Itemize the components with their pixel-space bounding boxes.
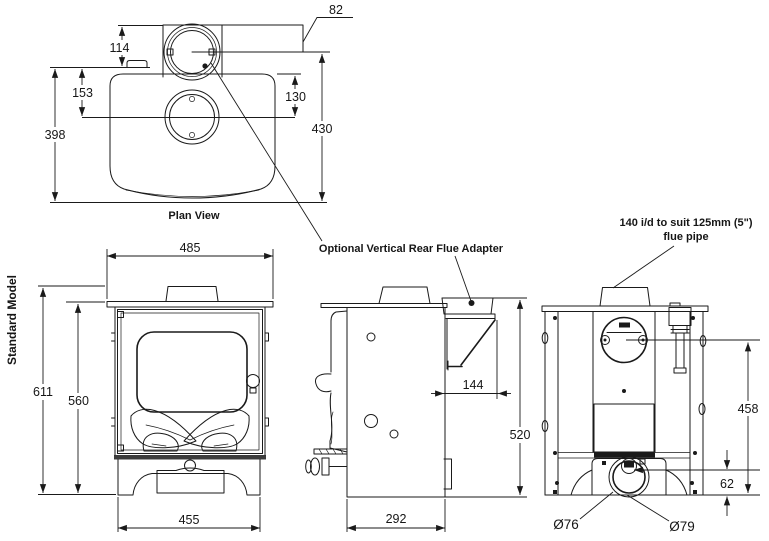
- air-tube-flange: [671, 326, 689, 334]
- plan-front-curve: [126, 190, 259, 197]
- bottom-inlet-tab: [624, 462, 634, 468]
- dim-458-label: 458: [738, 402, 759, 416]
- side-handle-knob: [311, 458, 320, 475]
- side-top-plate: [321, 304, 447, 308]
- rear-flue-adapter-flange: [446, 314, 495, 320]
- door-window: [137, 332, 247, 412]
- rear-top-plate: [542, 306, 708, 312]
- front-hearth-bar: [114, 455, 266, 460]
- side-dimensions: [347, 256, 527, 532]
- side-bolt-small-bottom: [390, 430, 398, 438]
- front-top-plate: [107, 302, 273, 308]
- flue-adapter-label: Optional Vertical Rear Flue Adapter: [319, 243, 504, 255]
- dim-144-label: 144: [463, 378, 484, 392]
- dim-611-label: 611: [33, 385, 53, 399]
- plan-body-outline: [110, 74, 275, 198]
- base-corner-plate: [640, 459, 645, 464]
- door-handle: [247, 375, 260, 388]
- air-tube-cap: [674, 368, 686, 373]
- air-tube-top-box: [669, 308, 691, 326]
- dim-430-label: 430: [312, 122, 333, 136]
- base-corner-bolt: [602, 461, 606, 465]
- side-door-latch: [316, 374, 331, 392]
- front-view: [107, 287, 273, 496]
- dim-114-label: 114: [110, 41, 130, 55]
- plan-outlet-hole-bottom: [189, 132, 194, 137]
- dia-76-label: Ø76: [553, 517, 579, 532]
- dim-62-label: 62: [720, 477, 734, 491]
- dim-455-label: 455: [179, 513, 200, 527]
- rear-edge-tabs: [542, 333, 706, 432]
- side-bolt-small-top: [367, 333, 375, 341]
- rear-dark-band: [594, 453, 655, 458]
- rear-flue-adapter-box: [442, 298, 493, 314]
- side-door-profile-lower: [330, 393, 347, 452]
- plan-view-caption: Plan View: [168, 210, 220, 222]
- dim-153-label: 153: [72, 86, 93, 100]
- stove-door: [118, 310, 263, 454]
- dim-82-label: 82: [329, 3, 343, 17]
- side-body-outline: [347, 308, 445, 498]
- rear-view: [542, 288, 708, 498]
- front-dimensions: [38, 249, 273, 532]
- air-tube: [676, 333, 684, 368]
- door-handle-base: [250, 388, 256, 393]
- rear-lower-panel: [594, 404, 654, 452]
- leader-flue-pipe: [613, 246, 674, 288]
- side-flue-collar: [379, 287, 430, 304]
- side-door-profile: [331, 311, 347, 372]
- side-ash-lip: [314, 449, 347, 454]
- adapter-diagonal: [461, 320, 495, 365]
- plan-air-lever: [127, 61, 147, 68]
- plan-rear-outlet-outer: [165, 90, 219, 144]
- flue-pipe-label-line2: flue pipe: [663, 231, 708, 243]
- stove-dimension-drawing: 398 153 114 130 430 82 Plan View 485 611…: [0, 0, 769, 541]
- dim-130-label: 130: [285, 90, 306, 104]
- ashpan-drawer: [157, 468, 224, 493]
- side-bolt-large: [365, 415, 378, 428]
- dim-398-label: 398: [45, 128, 66, 142]
- dim-485-label: 485: [180, 241, 201, 255]
- side-view: [306, 287, 495, 497]
- door-hinge-top: [118, 312, 124, 318]
- flue-pipe-label-line1: 140 i/d to suit 125mm (5"): [620, 217, 753, 229]
- blank-plate-clip: [619, 323, 630, 328]
- plan-collar-dot: [202, 63, 207, 68]
- standard-model-label: Standard Model: [5, 275, 19, 365]
- ear-bolt-left: [604, 339, 607, 342]
- rear-flue-collar: [600, 288, 650, 307]
- plan-flue-box: [163, 25, 303, 77]
- plan-view: [110, 24, 303, 198]
- leader-dia79: [627, 495, 669, 521]
- dim-292-label: 292: [386, 512, 407, 526]
- ashpan-knob: [185, 460, 196, 471]
- side-handle-flange: [322, 458, 329, 475]
- front-base-legs: [118, 460, 260, 496]
- leader-dia76: [580, 492, 613, 519]
- technical-drawing: 398 153 114 130 430 82 Plan View 485 611…: [0, 0, 769, 541]
- front-flue-collar: [166, 287, 218, 302]
- plan-outlet-hole-top: [189, 96, 194, 101]
- leader-adapter-dot: [455, 256, 471, 301]
- leader-82: [303, 18, 353, 43]
- dim-520-label: 520: [510, 428, 531, 442]
- dia-79-label: Ø79: [669, 519, 695, 534]
- dim-560-label: 560: [68, 394, 89, 408]
- leaf-decoration: [131, 409, 249, 451]
- leader-dot: [469, 300, 475, 306]
